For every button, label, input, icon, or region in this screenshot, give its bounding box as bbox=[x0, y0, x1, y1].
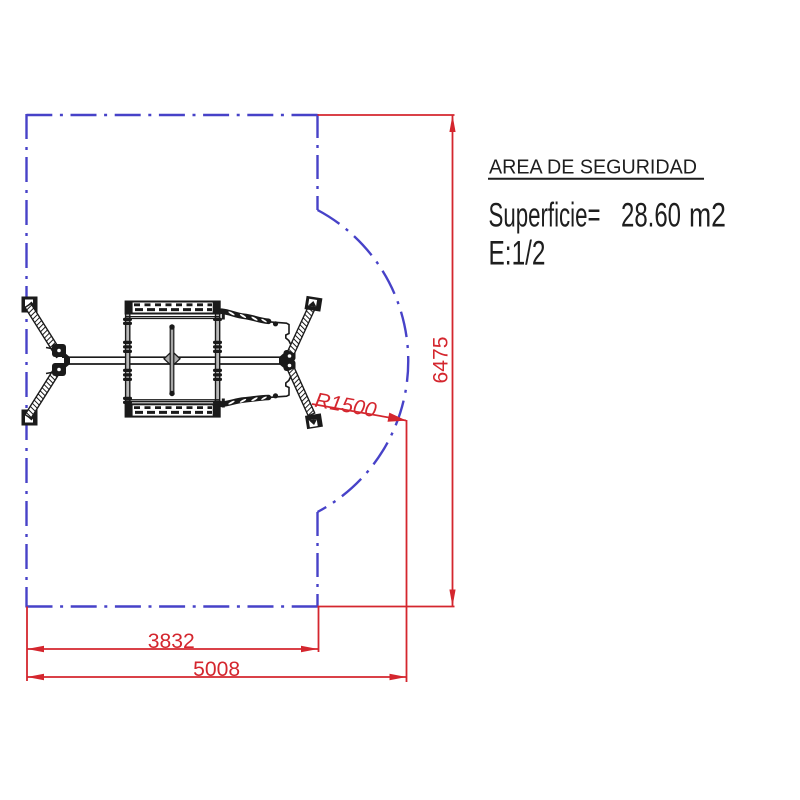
svg-text:6475: 6475 bbox=[430, 337, 453, 384]
svg-text:m2: m2 bbox=[689, 197, 726, 235]
svg-text:28.60: 28.60 bbox=[621, 197, 681, 235]
svg-text:E:1/2: E:1/2 bbox=[489, 235, 546, 273]
svg-text:5008: 5008 bbox=[193, 658, 240, 681]
svg-text:Superficie=: Superficie= bbox=[489, 197, 601, 235]
svg-text:3832: 3832 bbox=[148, 630, 195, 653]
svg-text:AREA DE SEGURIDAD: AREA DE SEGURIDAD bbox=[489, 157, 697, 179]
